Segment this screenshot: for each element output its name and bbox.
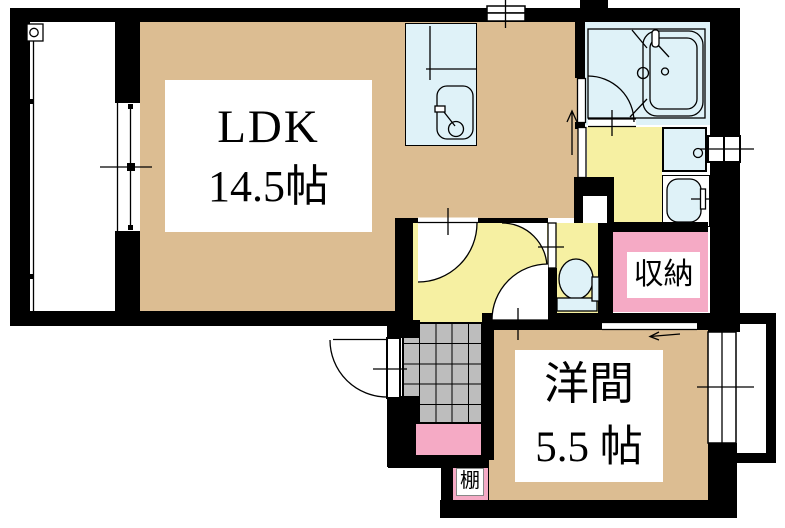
toilet-room bbox=[554, 223, 598, 313]
closet-name: 収納 bbox=[634, 259, 694, 291]
washroom-window-icon bbox=[700, 136, 754, 162]
hallway bbox=[413, 223, 548, 322]
wall-western-top bbox=[482, 313, 710, 330]
wall-right-mid bbox=[710, 162, 740, 313]
wall-bottom-right bbox=[440, 500, 737, 518]
wall-top bbox=[10, 8, 740, 22]
ldk-room-size: 14.5帖 bbox=[208, 163, 329, 211]
wall-western-left bbox=[482, 322, 494, 460]
wall-left bbox=[10, 8, 30, 326]
ldk-room-name: LDK bbox=[217, 102, 320, 153]
kitchen-unit bbox=[405, 23, 477, 146]
western-room-label: 洋間 5.5 帖 bbox=[515, 350, 663, 482]
shelf-label: 棚 bbox=[456, 468, 484, 496]
wall-bottom-left bbox=[10, 311, 398, 326]
wall-ldk-west-upper bbox=[115, 22, 140, 103]
entrance-door-icon bbox=[330, 338, 407, 398]
wall-entry-lower bbox=[387, 396, 420, 423]
closet-label: 収納 bbox=[627, 252, 700, 298]
wall-closet-top bbox=[610, 222, 708, 232]
wall-hall-top-b bbox=[478, 218, 548, 223]
western-room-name: 洋間 bbox=[544, 360, 634, 409]
balcony bbox=[30, 22, 115, 311]
wall-alcove-bottom bbox=[735, 453, 776, 463]
shelf-name: 棚 bbox=[460, 471, 480, 493]
wall-below-shoe bbox=[388, 455, 488, 468]
wall-toilet-closet bbox=[598, 223, 613, 313]
wall-bath-west-lower bbox=[575, 122, 585, 129]
ldk-label: LDK 14.5帖 bbox=[165, 80, 372, 232]
floorplan: LDK 14.5帖 洋間 5.5 帖 収納 棚 bbox=[0, 0, 785, 528]
washbasin-counter bbox=[662, 175, 710, 227]
wall-entry-notch bbox=[387, 320, 420, 338]
washing-machine-pan bbox=[662, 127, 707, 172]
pipe-space bbox=[583, 196, 607, 223]
shoe-cabinet bbox=[415, 423, 482, 457]
wall-bath-west-upper bbox=[575, 22, 585, 78]
wall-vent bbox=[580, 0, 608, 10]
wall-right-upper bbox=[710, 8, 740, 136]
western-room-size: 5.5 帖 bbox=[535, 425, 643, 471]
bathroom bbox=[585, 22, 710, 125]
wall-alcove-right bbox=[766, 313, 776, 463]
wall-western-right bbox=[708, 443, 737, 500]
wall-shoe-left bbox=[398, 423, 415, 457]
